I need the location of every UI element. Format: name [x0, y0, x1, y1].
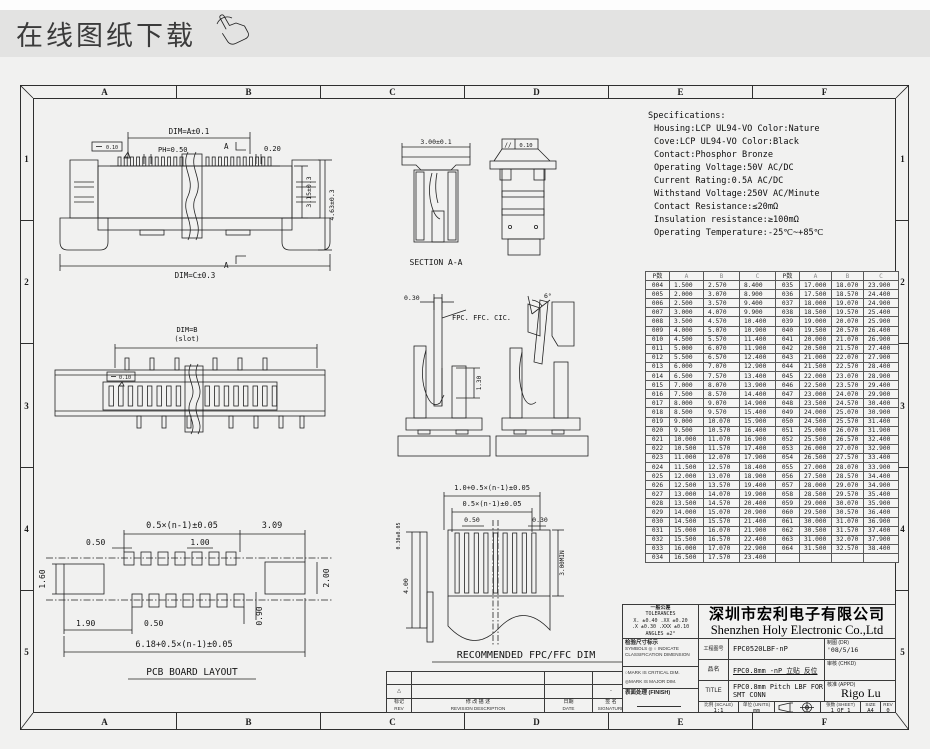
table-cell: 22.500: [800, 381, 832, 390]
title-value: FPC0.8mm Pitch LBF FOR SMT CONN: [728, 680, 825, 702]
dim-label: 0.30: [532, 516, 548, 524]
table-cell: 20.500: [800, 344, 832, 353]
table-cell: 7.000: [670, 381, 704, 390]
table-cell: 058: [776, 490, 800, 499]
table-cell: 019: [646, 417, 670, 426]
table-row: 0167.5008.57014.40004723.00024.07029.900: [646, 390, 899, 399]
desc-col-header: 修 改 描 述 REVISION DESCRIPTION: [411, 698, 545, 713]
table-cell: 037: [776, 299, 800, 308]
table-row: 0178.0009.07014.90004823.50024.57030.400: [646, 399, 899, 408]
table-cell: 064: [776, 544, 800, 553]
dim-label: (slot): [174, 335, 199, 343]
table-cell: 36.400: [864, 508, 899, 517]
table-cell: 16.400: [740, 426, 776, 435]
sheet-value: 1 OF 1: [821, 708, 860, 714]
table-cell: 18.900: [740, 472, 776, 481]
table-cell: 26.400: [864, 326, 899, 335]
table-cell: 024: [646, 462, 670, 471]
table-cell: 16.570: [704, 535, 740, 544]
dim-label: DIM=C±0.3: [175, 271, 216, 280]
table-cell: 30.000: [800, 517, 832, 526]
table-cell: 24.900: [864, 299, 899, 308]
table-row: 02411.50012.57018.40005527.00028.07033.9…: [646, 462, 899, 471]
dr-cell: 制图 (DR) '08/5/16: [824, 638, 896, 660]
table-row: 0125.5006.57012.40004321.00022.07027.900: [646, 353, 899, 362]
table-cell: 31.000: [800, 535, 832, 544]
table-cell: 032: [646, 535, 670, 544]
table-cell: [800, 553, 832, 562]
table-cell: 17.000: [800, 281, 832, 290]
drawing-no-value: FPC0520LBF-nP: [728, 638, 825, 660]
table-cell: 057: [776, 481, 800, 490]
table-cell: 9.400: [740, 299, 776, 308]
table-cell: 15.900: [740, 417, 776, 426]
dim-label: DIM=B: [176, 326, 197, 334]
scale-label: 比例 (SCALE): [699, 702, 738, 708]
marks-cell: ○MARK IS CRITICAL DIM. ◎MARK IS MAJOR DI…: [622, 666, 699, 689]
dim-label: 1.30: [476, 375, 483, 390]
table-cell: 17.570: [704, 553, 740, 562]
table-cell: 12.570: [704, 462, 740, 471]
top-pad-row: [124, 552, 236, 565]
table-cell: 30.500: [800, 526, 832, 535]
table-cell: 029: [646, 508, 670, 517]
zone-letter: C: [321, 713, 465, 730]
pcb-layout-drawing: 0.5×(n-1)±0.05 3.09 0.50 1.00 1.60 2.00 …: [32, 492, 344, 684]
table-row: 0073.0004.0709.90003818.50019.57025.400: [646, 308, 899, 317]
lower-pins: [137, 416, 304, 428]
table-cell: 21.570: [832, 344, 864, 353]
rev-label: REV: [881, 702, 895, 708]
download-header-button[interactable]: 在线图纸下载: [0, 10, 930, 57]
page: 在线图纸下载 ABCDEF ABCDEF 12345 12345 D: [0, 0, 930, 749]
fpc-conductors: [455, 533, 536, 593]
size-cell: SIZE A4: [860, 701, 881, 713]
units-cell: 单位 (UNITS) mm: [738, 701, 775, 713]
table-cell: 007: [646, 308, 670, 317]
table-cell: 19.570: [832, 308, 864, 317]
table-cell: 14.000: [670, 508, 704, 517]
table-cell: 14.400: [740, 390, 776, 399]
table-cell: 8.070: [704, 381, 740, 390]
table-cell: 039: [776, 317, 800, 326]
table-cell: 26.070: [832, 426, 864, 435]
table-row: 03416.50017.57023.400: [646, 553, 899, 562]
dim-label: 0.30: [404, 294, 420, 302]
table-row: 0041.5002.5708.40003517.00018.07023.900: [646, 281, 899, 290]
dim-label: 0.50: [144, 619, 163, 628]
column-header: P数: [646, 272, 670, 281]
table-cell: 047: [776, 390, 800, 399]
dim-label: 3.09: [262, 521, 282, 531]
table-cell: 060: [776, 508, 800, 517]
table-cell: 7.570: [704, 372, 740, 381]
spec-line: Operating Temperature:-25℃~+85℃: [648, 227, 903, 240]
table-cell: 24.570: [832, 399, 864, 408]
table-cell: 31.500: [800, 544, 832, 553]
critical-dim-note: ○MARK IS CRITICAL DIM.: [625, 668, 696, 677]
spec-line: Operating Voltage:50V AC/DC: [648, 162, 903, 175]
table-cell: 11.400: [740, 335, 776, 344]
table-header-row: P数ABCP数ABC: [646, 272, 899, 281]
table-row: 02612.50013.57019.40005728.00029.07034.9…: [646, 481, 899, 490]
table-cell: 8.500: [670, 408, 704, 417]
table-cell: 27.000: [800, 462, 832, 471]
company-name-en: Shenzhen Holy Electronic Co.,Ltd: [711, 623, 884, 637]
dim-label: 1.90: [76, 619, 95, 628]
table-cell: 17.070: [704, 544, 740, 553]
table-cell: 23.070: [832, 372, 864, 381]
dim-label: 3.00±0.1: [420, 138, 451, 146]
table-cell: 10.570: [704, 426, 740, 435]
dim-label: 3.00MIN: [559, 550, 566, 576]
rev-label-en: REV: [394, 706, 403, 712]
top-view-drawing: DIM=B (slot) 0.10: [45, 322, 335, 450]
table-cell: 048: [776, 399, 800, 408]
table-cell: 055: [776, 462, 800, 471]
table-cell: 23.000: [800, 390, 832, 399]
table-cell: 25.000: [800, 426, 832, 435]
zone-letter: E: [609, 713, 753, 730]
table-cell: 022: [646, 444, 670, 453]
table-cell: 29.500: [800, 508, 832, 517]
table-cell: 28.070: [832, 462, 864, 471]
table-cell: 28.400: [864, 362, 899, 371]
table-cell: 040: [776, 326, 800, 335]
table-cell: 4.000: [670, 326, 704, 335]
table-cell: 21.900: [740, 526, 776, 535]
table-cell: 28.000: [800, 481, 832, 490]
chk-cell: 审核 (CHKD): [824, 659, 896, 681]
table-cell: 20.570: [832, 326, 864, 335]
table-cell: 13.900: [740, 381, 776, 390]
table-cell: 013: [646, 362, 670, 371]
appd-signature: Rigo Lu: [841, 686, 893, 701]
gdt-value: 0.10: [519, 143, 532, 149]
table-cell: 20.900: [740, 508, 776, 517]
table-row: 0094.0005.07010.90004019.50020.57026.400: [646, 326, 899, 335]
table-cell: [864, 553, 899, 562]
table-cell: 9.070: [704, 399, 740, 408]
table-cell: 12.070: [704, 453, 740, 462]
zone-number: 1: [20, 98, 33, 221]
table-cell: 30.070: [832, 499, 864, 508]
table-cell: [832, 553, 864, 562]
table-row: 03215.50016.57022.40006331.00032.07037.9…: [646, 535, 899, 544]
header-title: 在线图纸下载: [16, 14, 196, 53]
dim-label: 0.10: [119, 375, 131, 381]
table-cell: 053: [776, 444, 800, 453]
table-cell: 16.900: [740, 435, 776, 444]
dim-label: 0.20: [264, 145, 281, 153]
table-cell: 13.500: [670, 499, 704, 508]
table-cell: 15.500: [670, 535, 704, 544]
table-cell: 32.400: [864, 435, 899, 444]
table-cell: 25.570: [832, 417, 864, 426]
table-cell: 17.400: [740, 444, 776, 453]
view-label: RECOMMENDED FPC/FFC DIM: [457, 650, 595, 661]
table-cell: 009: [646, 326, 670, 335]
table-cell: 14.570: [704, 499, 740, 508]
table-cell: 33.900: [864, 462, 899, 471]
table-cell: 9.000: [670, 417, 704, 426]
table-cell: 1.500: [670, 281, 704, 290]
spec-line: Cove:LCP UL94-VO Color:Black: [648, 136, 903, 149]
table-cell: 21.500: [800, 362, 832, 371]
table-cell: 050: [776, 417, 800, 426]
dr-date: '08/5/16: [827, 646, 893, 654]
dim-label: DIM=A±0.1: [169, 127, 210, 136]
table-cell: 10.400: [740, 317, 776, 326]
click-hand-icon: [208, 12, 250, 55]
table-cell: 24.070: [832, 390, 864, 399]
table-row: 0136.0007.07012.90004421.50022.57028.400: [646, 362, 899, 371]
table-cell: 13.570: [704, 481, 740, 490]
tolerance-line: .X ±0.30 .XXX ±0.10: [623, 624, 698, 630]
table-cell: 061: [776, 517, 800, 526]
table-cell: 11.900: [740, 344, 776, 353]
table-cell: 37.400: [864, 526, 899, 535]
table-cell: 056: [776, 472, 800, 481]
table-cell: 35.400: [864, 490, 899, 499]
table-cell: 22.070: [832, 353, 864, 362]
table-cell: 4.570: [704, 317, 740, 326]
table-cell: 043: [776, 353, 800, 362]
dim-label: PH=0.50: [158, 146, 188, 154]
table-cell: 17.900: [740, 453, 776, 462]
finish-cell: 表面处理 (FINISH): [622, 688, 699, 713]
table-cell: 028: [646, 499, 670, 508]
zone-letter: F: [753, 713, 896, 730]
table-cell: 20.000: [800, 335, 832, 344]
table-cell: 16.070: [704, 526, 740, 535]
table-cell: 6.000: [670, 362, 704, 371]
table-cell: 25.400: [864, 308, 899, 317]
table-cell: 23.400: [740, 553, 776, 562]
column-header: P数: [776, 272, 800, 281]
table-cell: 2.570: [704, 281, 740, 290]
table-cell: 26.000: [800, 444, 832, 453]
table-cell: 15.400: [740, 408, 776, 417]
specs-title: Specifications:: [648, 110, 903, 123]
table-row: 02311.00012.07017.90005426.50027.57033.4…: [646, 453, 899, 462]
table-cell: 038: [776, 308, 800, 317]
table-row: 0052.0003.0708.90003617.50018.57024.400: [646, 290, 899, 299]
table-cell: 005: [646, 290, 670, 299]
table-cell: 10.500: [670, 444, 704, 453]
table-cell: 026: [646, 481, 670, 490]
table-row: 02713.00014.07019.90005828.50029.57035.4…: [646, 490, 899, 499]
table-cell: 32.570: [832, 544, 864, 553]
table-cell: 22.900: [740, 544, 776, 553]
dim-label: 0.50: [86, 538, 105, 547]
table-cell: 25.900: [864, 317, 899, 326]
table-cell: 19.000: [800, 317, 832, 326]
table-cell: 20.400: [740, 499, 776, 508]
units-value: mm: [739, 708, 774, 714]
table-cell: 29.400: [864, 381, 899, 390]
spec-line: Housing:LCP UL94-VO Color:Nature: [648, 123, 903, 136]
table-cell: 19.900: [740, 490, 776, 499]
company-name-cn: 深圳市宏利电子有限公司: [709, 606, 885, 623]
table-cell: 18.070: [832, 281, 864, 290]
table-cell: 15.070: [704, 508, 740, 517]
dim-label: 0.30±0.05: [396, 522, 402, 549]
table-cell: 016: [646, 390, 670, 399]
sheet-cell: 张数 (SHEET) 1 OF 1: [820, 701, 861, 713]
dim-label: 1.60: [38, 569, 47, 588]
tolerances-cell: 一般公差 TOLERANCES X. ±0.40 .XX ±0.20 .X ±0…: [622, 604, 699, 639]
table-cell: 26.500: [800, 453, 832, 462]
dim-label: 0.50: [464, 516, 480, 524]
table-cell: 7.070: [704, 362, 740, 371]
table-cell: 052: [776, 435, 800, 444]
table-cell: 034: [646, 553, 670, 562]
table-row: 0104.5005.57011.40004120.00021.07026.900: [646, 335, 899, 344]
table-cell: 21.070: [832, 335, 864, 344]
inspection-line: CLASSIFICATION DIMENSION: [625, 652, 696, 658]
table-cell: 042: [776, 344, 800, 353]
table-cell: 32.900: [864, 444, 899, 453]
table-cell: 5.500: [670, 353, 704, 362]
table-cell: 13.070: [704, 472, 740, 481]
zone-letter: F: [753, 85, 896, 98]
table-row: 03115.00016.07021.90006230.50031.57037.4…: [646, 526, 899, 535]
table-row: 02813.50014.57020.40005929.00030.07035.9…: [646, 499, 899, 508]
table-cell: 17.500: [800, 290, 832, 299]
date-label-en: DATE: [563, 706, 575, 712]
table-cell: 35.900: [864, 499, 899, 508]
tolerance-line: ANGLES ±2°: [623, 631, 698, 637]
zone-letter: E: [609, 85, 753, 98]
column-header: A: [800, 272, 832, 281]
table-cell: 29.900: [864, 390, 899, 399]
spec-line: Contact:Phosphor Bronze: [648, 149, 903, 162]
table-cell: 10.070: [704, 417, 740, 426]
appd-cell: 核准 (APPD) Rigo Lu: [824, 680, 896, 702]
table-row: 03316.00017.07022.90006431.50032.57038.4…: [646, 544, 899, 553]
table-cell: 059: [776, 499, 800, 508]
table-cell: 11.000: [670, 453, 704, 462]
table-cell: 27.570: [832, 453, 864, 462]
sheet-label: 张数 (SHEET): [821, 702, 860, 708]
table-cell: 12.000: [670, 472, 704, 481]
zone-letter: D: [465, 85, 609, 98]
table-cell: 041: [776, 335, 800, 344]
rev-cell: REV 0: [880, 701, 896, 713]
projection-cell: [774, 701, 821, 713]
table-row: 0199.00010.07015.90005024.50025.57031.40…: [646, 417, 899, 426]
table-cell: 27.400: [864, 344, 899, 353]
table-cell: 25.500: [800, 435, 832, 444]
fpc-dim-drawing: 1.0+0.5×(n-1)±0.05 0.5×(n-1)±0.05 0.50 0…: [392, 476, 648, 668]
table-cell: 31.070: [832, 517, 864, 526]
zone-letters-bottom: ABCDEF: [33, 713, 896, 730]
table-cell: 28.500: [800, 490, 832, 499]
zone-letter: A: [33, 713, 177, 730]
zone-letter: D: [465, 713, 609, 730]
size-value: A4: [861, 708, 880, 714]
table-cell: 017: [646, 399, 670, 408]
table-cell: 16.500: [670, 553, 704, 562]
sign-label-en: SIGNATURE: [598, 706, 624, 712]
table-cell: 031: [646, 526, 670, 535]
side-view-drawing: // 0.10: [482, 135, 564, 263]
specs-lines: Housing:LCP UL94-VO Color:NatureCove:LCP…: [648, 123, 903, 240]
table-cell: 11.070: [704, 435, 740, 444]
gdt-symbol: //: [504, 142, 512, 149]
table-cell: 12.400: [740, 353, 776, 362]
dim-label: 4.63±0.3: [328, 189, 336, 220]
table-row: 0157.0008.07013.90004622.50023.57029.400: [646, 381, 899, 390]
table-cell: 008: [646, 317, 670, 326]
table-cell: 34.900: [864, 481, 899, 490]
table-cell: 10.000: [670, 435, 704, 444]
table-cell: 030: [646, 517, 670, 526]
table-cell: 22.000: [800, 372, 832, 381]
table-cell: 31.400: [864, 417, 899, 426]
column-header: C: [864, 272, 899, 281]
table-cell: 28.900: [864, 372, 899, 381]
table-cell: 006: [646, 299, 670, 308]
table-cell: 24.400: [864, 290, 899, 299]
table-cell: 11.570: [704, 444, 740, 453]
third-angle-projection-icon: [777, 702, 819, 713]
table-cell: 38.400: [864, 544, 899, 553]
fpc-ffc-label: FPC. FFC. CIC.: [452, 314, 511, 322]
table-cell: 32.070: [832, 535, 864, 544]
table-row: 0188.5009.57015.40004924.00025.07030.900: [646, 408, 899, 417]
table-cell: 18.500: [800, 308, 832, 317]
scale-value: 1:1: [699, 708, 738, 714]
table-cell: 6.070: [704, 344, 740, 353]
table-cell: [776, 553, 800, 562]
table-cell: 30.900: [864, 408, 899, 417]
table-cell: 033: [646, 544, 670, 553]
table-cell: 10.900: [740, 326, 776, 335]
table-cell: 25.070: [832, 408, 864, 417]
table-cell: 36.900: [864, 517, 899, 526]
spec-line: Current Rating:0.5A AC/DC: [648, 175, 903, 188]
spec-line: Contact Resistance:≤20mΩ: [648, 201, 903, 214]
table-cell: 37.900: [864, 535, 899, 544]
table-cell: 19.400: [740, 481, 776, 490]
section-mark: A: [224, 142, 229, 151]
table-cell: 021: [646, 435, 670, 444]
column-header: A: [670, 272, 704, 281]
desc-label-en: REVISION DESCRIPTION: [451, 706, 506, 712]
table-cell: 062: [776, 526, 800, 535]
table-cell: 21.000: [800, 353, 832, 362]
table-cell: 012: [646, 353, 670, 362]
table-cell: 19.500: [800, 326, 832, 335]
table-cell: 045: [776, 372, 800, 381]
table-cell: 22.570: [832, 362, 864, 371]
table-cell: 5.570: [704, 335, 740, 344]
table-cell: 15.000: [670, 526, 704, 535]
column-header: B: [832, 272, 864, 281]
table-row: 02110.00011.07016.90005225.50026.57032.4…: [646, 435, 899, 444]
table-cell: 26.570: [832, 435, 864, 444]
table-cell: 14.070: [704, 490, 740, 499]
table-cell: 26.900: [864, 335, 899, 344]
dim-label: 0.5×(n-1)±0.05: [462, 500, 521, 508]
table-row: 0083.5004.57010.40003919.00020.07025.900: [646, 317, 899, 326]
table-cell: 063: [776, 535, 800, 544]
zone-letters-top: ABCDEF: [33, 85, 896, 98]
table-cell: 015: [646, 381, 670, 390]
zone-letter: C: [321, 85, 465, 98]
